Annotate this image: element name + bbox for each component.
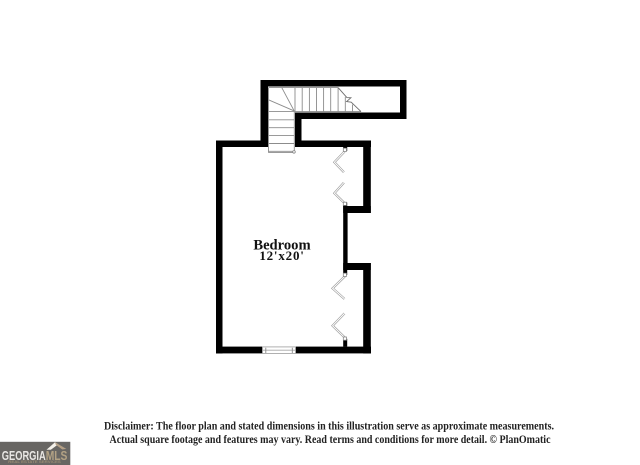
svg-text:12'x20': 12'x20' — [259, 248, 304, 263]
svg-text:Disclaimer: The floor plan and: Disclaimer: The floor plan and stated di… — [104, 418, 554, 432]
svg-text:Actual square footage and feat: Actual square footage and features may v… — [110, 432, 552, 446]
svg-text:REAL ESTATE SERVICES: REAL ESTATE SERVICES — [8, 460, 61, 464]
